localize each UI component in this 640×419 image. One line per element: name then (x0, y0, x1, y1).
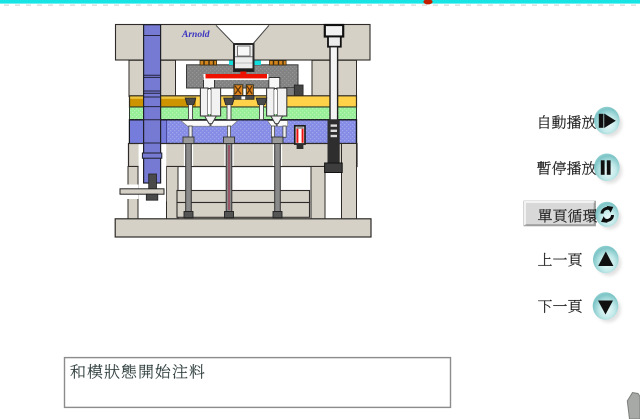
svg-text:Arnold: Arnold (181, 30, 210, 40)
